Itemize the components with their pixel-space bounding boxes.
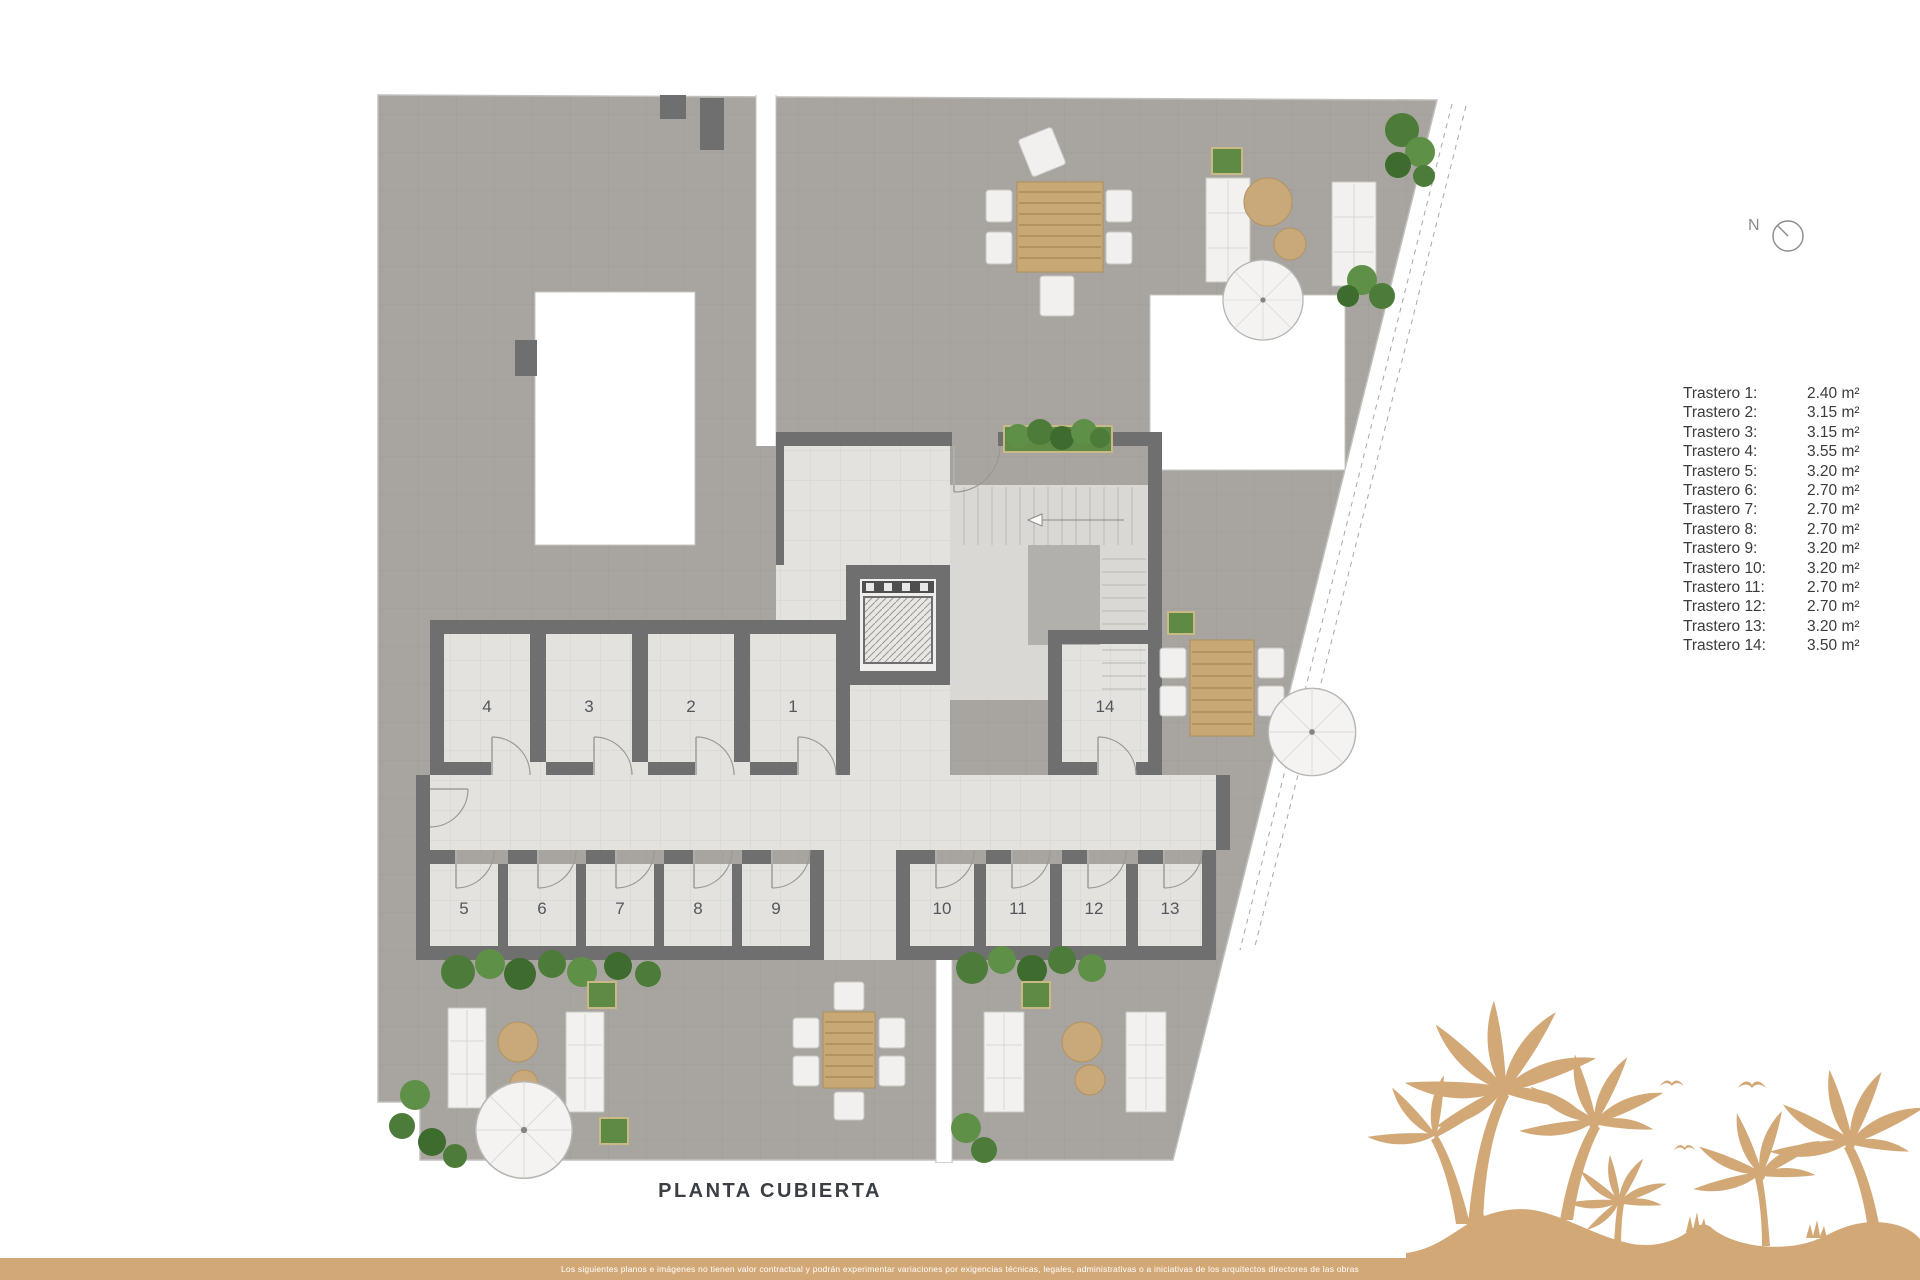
footer-disclaimer-text: Los siguientes planos e imágenes no tien… [561, 1264, 1359, 1274]
legend-row: Trastero 10:3.20 m² [1683, 559, 1873, 578]
room-label-12: 12 [1085, 899, 1104, 918]
legend-row: Trastero 7:2.70 m² [1683, 500, 1873, 519]
legend-row: Trastero 3:3.15 m² [1683, 423, 1873, 442]
legend-row: Trastero 9:3.20 m² [1683, 539, 1873, 558]
legend-label: Trastero 2: [1683, 403, 1807, 422]
legend-label: Trastero 10: [1683, 559, 1807, 578]
room-label-14: 14 [1096, 697, 1115, 716]
room-label-13: 13 [1161, 899, 1180, 918]
legend-value: 2.70 m² [1807, 597, 1873, 616]
bird-icon [1660, 1081, 1684, 1086]
legend-row: Trastero 1:2.40 m² [1683, 384, 1873, 403]
room-label-3: 3 [584, 697, 593, 716]
room-label-8: 8 [693, 899, 702, 918]
north-needle-icon [1777, 225, 1788, 236]
lightwell-marker [515, 340, 537, 376]
umbrella-icon [476, 1082, 573, 1179]
legend-value: 3.20 m² [1807, 617, 1873, 636]
legend-value: 2.70 m² [1807, 500, 1873, 519]
legend-value: 3.15 m² [1807, 403, 1873, 422]
room-label-6: 6 [537, 899, 546, 918]
legend-label: Trastero 13: [1683, 617, 1807, 636]
umbrella-icon [1223, 260, 1303, 340]
legend-value: 2.70 m² [1807, 578, 1873, 597]
north-label: N [1748, 217, 1760, 234]
legend-row: Trastero 5:3.20 m² [1683, 462, 1873, 481]
legend-label: Trastero 11: [1683, 578, 1807, 597]
legend-row: Trastero 11:2.70 m² [1683, 578, 1873, 597]
legend-value: 3.55 m² [1807, 442, 1873, 461]
legend-value: 3.15 m² [1807, 423, 1873, 442]
north-indicator: N [1740, 206, 1820, 256]
floor-plan-canvas: 1 2 3 4 5 6 7 8 9 10 11 12 13 14 [0, 0, 1920, 1280]
room-label-4: 4 [482, 697, 491, 716]
legend-value: 2.70 m² [1807, 520, 1873, 539]
legend-value: 3.20 m² [1807, 539, 1873, 558]
room-label-2: 2 [686, 697, 695, 716]
plan-title: PLANTA CUBIERTA [520, 1180, 1020, 1203]
room-label-10: 10 [933, 899, 952, 918]
legend-value: 2.70 m² [1807, 481, 1873, 500]
legend-label: Trastero 6: [1683, 481, 1807, 500]
palm-trees-graphic [1367, 1000, 1920, 1258]
umbrella-icon [1268, 688, 1355, 775]
legend-label: Trastero 14: [1683, 636, 1807, 655]
legend-value: 3.20 m² [1807, 559, 1873, 578]
legend-row: Trastero 12:2.70 m² [1683, 597, 1873, 616]
party-wall-strip-upper [756, 95, 776, 446]
party-wall-strip-lower [936, 958, 952, 1162]
legend-row: Trastero 6:2.70 m² [1683, 481, 1873, 500]
storage-area-legend: Trastero 1:2.40 m² Trastero 2:3.15 m² Tr… [1683, 384, 1873, 656]
terrace-passage [824, 850, 896, 960]
legend-row: Trastero 13:3.20 m² [1683, 617, 1873, 636]
legend-label: Trastero 1: [1683, 384, 1807, 403]
room-label-7: 7 [615, 899, 624, 918]
room-label-1: 1 [788, 697, 797, 716]
legend-label: Trastero 7: [1683, 500, 1807, 519]
legend-row: Trastero 14:3.50 m² [1683, 636, 1873, 655]
elevator [846, 565, 950, 685]
legend-label: Trastero 5: [1683, 462, 1807, 481]
legend-row: Trastero 8:2.70 m² [1683, 520, 1873, 539]
footer-disclaimer-bar: Los siguientes planos e imágenes no tien… [0, 1258, 1920, 1280]
legend-label: Trastero 4: [1683, 442, 1807, 461]
legend-label: Trastero 9: [1683, 539, 1807, 558]
floor-plan-page: 1 2 3 4 5 6 7 8 9 10 11 12 13 14 [0, 0, 1920, 1280]
legend-label: Trastero 8: [1683, 520, 1807, 539]
legend-value: 3.50 m² [1807, 636, 1873, 655]
legend-row: Trastero 2:3.15 m² [1683, 403, 1873, 422]
legend-row: Trastero 4:3.55 m² [1683, 442, 1873, 461]
legend-label: Trastero 12: [1683, 597, 1807, 616]
bird-icon [1738, 1082, 1766, 1088]
bird-icon [1674, 1145, 1695, 1150]
room-label-11: 11 [1009, 899, 1027, 918]
room-label-5: 5 [459, 899, 468, 918]
legend-value: 2.40 m² [1807, 384, 1873, 403]
legend-value: 3.20 m² [1807, 462, 1873, 481]
room-label-9: 9 [771, 899, 780, 918]
legend-label: Trastero 3: [1683, 423, 1807, 442]
storage-corridor [430, 775, 1230, 850]
elevator-cab [864, 597, 932, 663]
lightwell-left [535, 292, 695, 545]
